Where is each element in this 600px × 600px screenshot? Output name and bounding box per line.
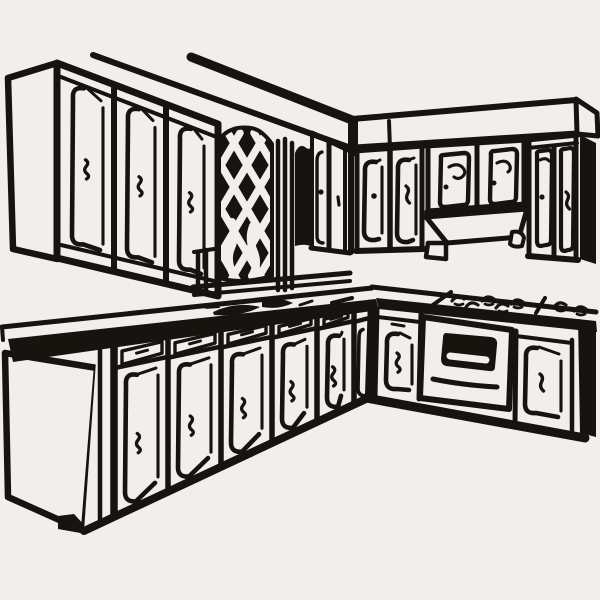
wall-cabinet-narrow-doors xyxy=(355,146,424,251)
kitchen-line-art: Black-and-white clip-art drawing of an L… xyxy=(0,0,600,600)
wall-cabinets-left xyxy=(8,63,218,296)
base-side-black xyxy=(578,318,596,437)
wall-cabinet-side-black xyxy=(580,135,596,264)
illustration-canvas: Kitchen cabinets line-art illustration B… xyxy=(0,0,600,600)
oven-window xyxy=(441,333,497,371)
range-hood xyxy=(426,205,527,259)
oven xyxy=(420,317,512,409)
wall-cabinets-beside-window xyxy=(311,133,350,253)
wall-cabinet-tall-right xyxy=(527,135,578,260)
